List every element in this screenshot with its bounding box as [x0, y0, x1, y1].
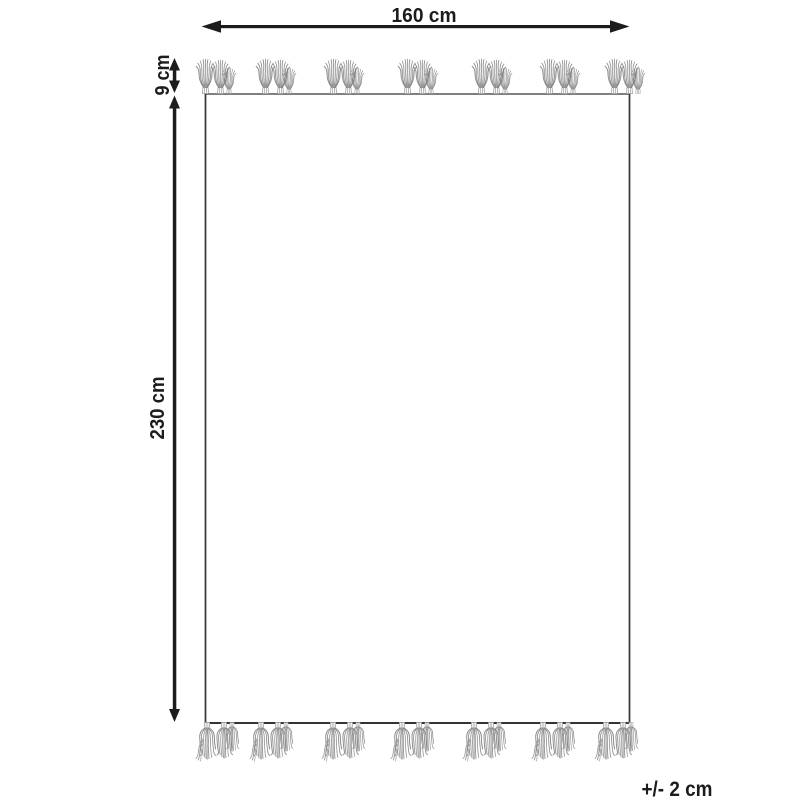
svg-text:+/- 2 cm: +/- 2 cm [642, 777, 713, 800]
svg-text:9 cm: 9 cm [151, 55, 174, 96]
svg-text:230 cm: 230 cm [146, 377, 169, 440]
svg-text:160 cm: 160 cm [392, 4, 457, 27]
